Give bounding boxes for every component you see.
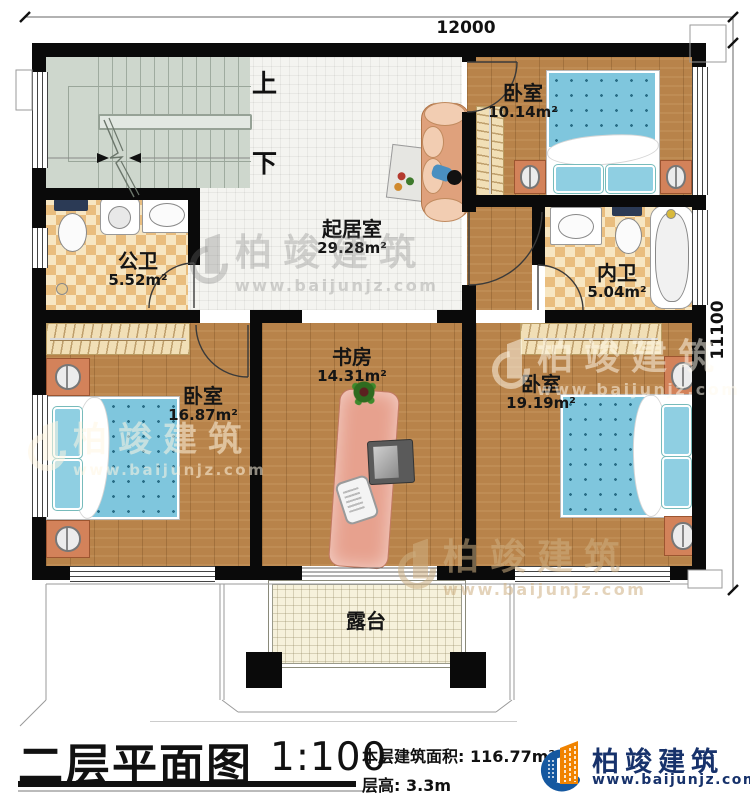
bed-right bbox=[560, 394, 694, 518]
floor-height-text: 层高: 3.3m bbox=[362, 772, 451, 796]
wall-interior bbox=[462, 57, 476, 62]
company-url: www.baijunjz.com bbox=[592, 772, 750, 788]
footer-divider bbox=[150, 721, 517, 722]
sofa-armrest bbox=[424, 102, 466, 126]
wall-study-bedroom-right bbox=[462, 323, 476, 566]
room-label-public-bath: 公卫 5.52m² bbox=[108, 250, 167, 289]
bathtub-basin bbox=[655, 213, 689, 302]
wall-public-bath-right bbox=[188, 195, 200, 265]
stair-railing bbox=[98, 114, 252, 130]
room-label-bedroom-right: 卧室 19.19m² bbox=[506, 373, 576, 412]
window-bedroom-left-south bbox=[70, 566, 215, 582]
wall-bedroom-left-study bbox=[250, 323, 262, 566]
pillow bbox=[606, 165, 655, 193]
wardrobe-bedroom-left bbox=[46, 323, 190, 355]
bed-top bbox=[546, 70, 660, 196]
window-bedroom-left bbox=[32, 395, 48, 517]
pillow bbox=[53, 407, 82, 458]
sofa-cushion bbox=[422, 126, 444, 158]
sink-basin bbox=[558, 214, 594, 239]
terrace-column bbox=[450, 652, 486, 688]
dimension-right: 11100 bbox=[708, 285, 728, 375]
toilet-tank bbox=[54, 199, 88, 211]
wall-stairs-bath bbox=[46, 188, 200, 200]
title-underline-thin bbox=[18, 790, 364, 792]
floor-area-text: 本层建筑面积: 116.77m² bbox=[362, 743, 555, 767]
dimension-top: 12000 bbox=[426, 18, 506, 38]
room-label-living: 起居室 29.28m² bbox=[317, 218, 387, 257]
monitor-screen bbox=[373, 446, 399, 479]
wall-exterior-left bbox=[32, 268, 46, 395]
terrace-threshold bbox=[302, 568, 437, 576]
bed-left bbox=[46, 396, 180, 520]
wall-exterior-bottom bbox=[437, 566, 515, 580]
room-label-bedroom-top: 卧室 10.14m² bbox=[488, 82, 558, 121]
sofa-armrest bbox=[424, 198, 466, 222]
person-head bbox=[447, 170, 462, 185]
pillow bbox=[662, 405, 691, 456]
computer-monitor bbox=[367, 439, 415, 485]
wall-exterior-right bbox=[692, 305, 706, 580]
nightstand bbox=[660, 160, 692, 194]
nightstand bbox=[46, 520, 90, 558]
wall-exterior-top bbox=[32, 43, 706, 57]
wall-middle bbox=[545, 310, 706, 323]
window-stairs bbox=[32, 72, 48, 168]
wall-exterior-bottom bbox=[215, 566, 302, 580]
wall-middle bbox=[32, 310, 200, 323]
shower-drum bbox=[108, 206, 131, 229]
wall-exterior-left bbox=[32, 168, 46, 228]
wall-exterior-bottom bbox=[670, 566, 706, 580]
window-bedroom-top bbox=[692, 67, 708, 195]
pillow bbox=[554, 165, 603, 193]
table-decor bbox=[397, 172, 406, 181]
room-label-inner-bath: 内卫 5.04m² bbox=[587, 262, 646, 301]
stairs-up-label: 上 bbox=[252, 64, 277, 100]
wall-exterior-left bbox=[32, 43, 46, 72]
chair-slats bbox=[342, 485, 365, 513]
wall-exterior-right bbox=[692, 43, 706, 67]
window-public-bath bbox=[32, 228, 48, 268]
floorplan-canvas: 12000 11100 上 下 卧室 10.14m² 起居室 29.28m² 公… bbox=[0, 0, 750, 803]
floor-drain-icon bbox=[56, 283, 68, 295]
nightstand bbox=[514, 160, 546, 194]
wardrobe-bedroom-right bbox=[520, 323, 662, 355]
faucet-icon bbox=[666, 209, 676, 219]
company-logo-icon bbox=[538, 736, 588, 798]
room-label-bedroom-left: 卧室 16.87m² bbox=[168, 385, 238, 424]
wall-exterior-bottom bbox=[32, 566, 70, 580]
window-bedroom-right-south bbox=[515, 566, 670, 582]
wall-middle bbox=[437, 310, 476, 323]
wall-bedroom-top-bottom bbox=[462, 195, 692, 207]
terrace-column bbox=[246, 652, 282, 688]
title-underline-thick bbox=[18, 781, 356, 787]
toilet-bowl bbox=[615, 218, 642, 254]
stairs-down-label: 下 bbox=[252, 144, 277, 180]
floor-vestibule bbox=[467, 207, 532, 310]
wall-inner-bath-left bbox=[532, 207, 545, 265]
pillow bbox=[662, 457, 691, 508]
room-label-terrace: 露台 bbox=[346, 610, 386, 632]
room-label-study: 书房 14.31m² bbox=[317, 346, 387, 385]
pillow bbox=[53, 459, 82, 510]
window-inner-bath bbox=[692, 210, 708, 305]
sink-basin bbox=[149, 203, 185, 227]
toilet-bowl bbox=[58, 213, 87, 252]
wall-exterior-right bbox=[692, 195, 706, 210]
nightstand bbox=[46, 358, 90, 396]
wall-middle bbox=[250, 310, 302, 323]
